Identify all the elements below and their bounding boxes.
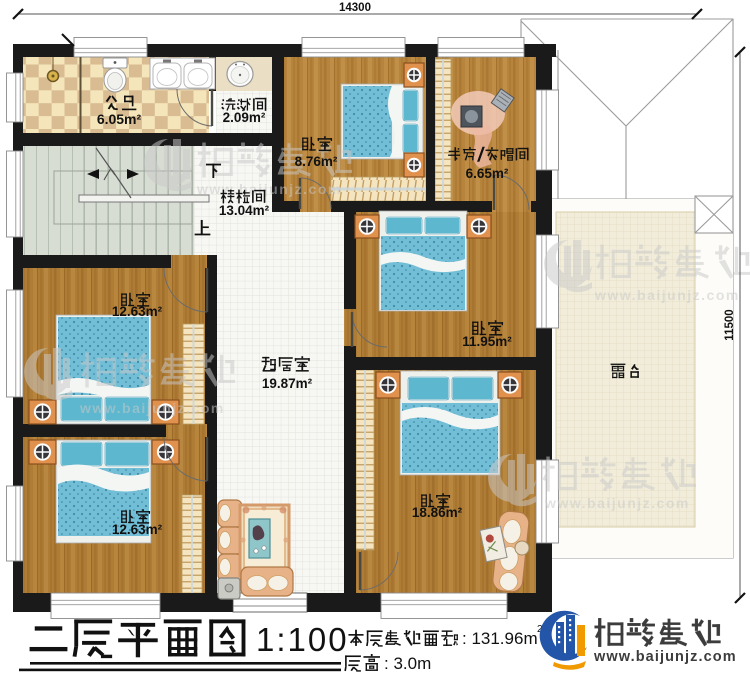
- svg-text:12.63m²: 12.63m²: [112, 522, 163, 537]
- svg-text:19.87m²: 19.87m²: [262, 376, 313, 391]
- svg-text:6.65m²: 6.65m²: [466, 166, 509, 181]
- svg-text:www.baijunjz.com: www.baijunjz.com: [544, 495, 690, 511]
- svg-text:www.baijunjz.com: www.baijunjz.com: [593, 649, 737, 665]
- svg-text:14300: 14300: [339, 2, 371, 14]
- svg-text:18.86m²: 18.86m²: [412, 505, 463, 520]
- svg-text:11500: 11500: [724, 309, 736, 340]
- svg-text:www.baijunjz.com: www.baijunjz.com: [196, 181, 342, 197]
- svg-text:11.95m²: 11.95m²: [462, 334, 512, 349]
- svg-text:: 3.0m: : 3.0m: [384, 654, 431, 673]
- svg-text:2.09m²: 2.09m²: [223, 110, 266, 125]
- svg-text:6.05m²: 6.05m²: [97, 111, 142, 127]
- svg-text:www.baijunjz.com: www.baijunjz.com: [79, 400, 225, 416]
- svg-text:12.63m²: 12.63m²: [112, 304, 163, 319]
- svg-text:8.76m²: 8.76m²: [295, 154, 338, 169]
- svg-text:: 131.96m: : 131.96m: [462, 629, 538, 648]
- svg-text:13.04m²: 13.04m²: [219, 203, 270, 218]
- svg-text:www.baijunjz.com: www.baijunjz.com: [594, 287, 740, 303]
- svg-text:1:100: 1:100: [256, 621, 349, 658]
